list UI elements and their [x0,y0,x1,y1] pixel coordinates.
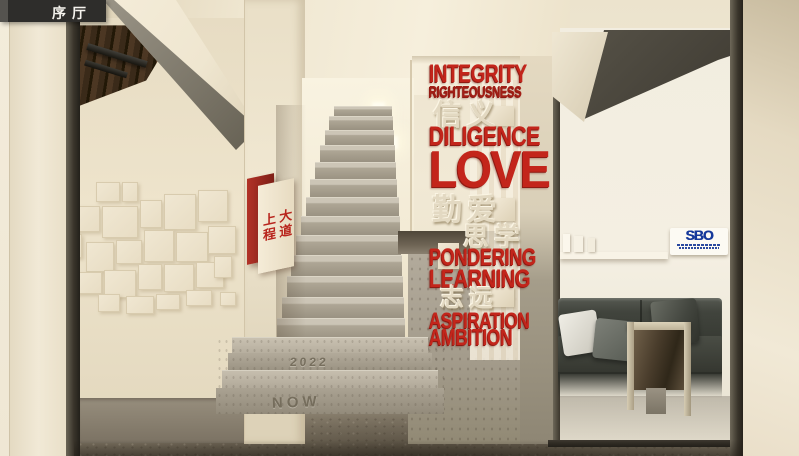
stair-step [320,145,396,162]
bookend [574,236,583,252]
word-integrity: INTEGRITY [429,63,527,86]
word-righteousness: RIGHTEOUSNESS [429,86,522,101]
riser-year-label: 2022 [290,355,330,369]
stair-step [315,162,396,180]
label-bar-chip [0,0,8,22]
stair-step [306,197,399,216]
sbo-plaque: SBO [670,228,728,255]
stair-step [291,255,402,276]
sbo-caption-line [679,247,719,249]
side-table-leg [627,322,634,410]
stair-step [296,235,401,256]
right-room-floor-shadow [560,396,730,442]
sbo-caption-line [677,244,721,246]
word-love: LOVE [429,147,549,195]
shelf [560,252,668,259]
page-title: 序厅 [52,3,92,23]
right-door-frame [730,0,743,456]
label-bar: 序厅 [0,0,106,22]
bookend [563,234,570,252]
right-door-threshold [548,440,740,447]
red-sign-col-left: 上程 [261,211,276,244]
right-wall-panel [743,0,799,456]
riser-now-label: NOW [272,393,321,412]
stair-step [310,179,397,198]
stair-step [301,216,400,236]
stair-step [325,130,395,146]
stair-step [334,106,392,117]
side-table-top [627,322,691,330]
red-sign-col-right: 大道 [277,208,292,241]
bookend [588,238,595,252]
word-ambition: AMBITION [429,327,512,348]
side-table-foot [646,388,666,414]
sbo-logo: SBO [670,228,728,243]
red-sign-panel: 大道 上程 [258,178,294,274]
red-sign-text: 大道 上程 [260,208,293,245]
foyer-rendering: 2022 NOW 大道 上程 INTEGRITY RIGHTEOUSNESS 信… [0,0,799,456]
side-table-panel [634,330,684,390]
side-table-leg [684,322,691,416]
steps-speckle [216,337,444,414]
stair-step [329,116,393,130]
